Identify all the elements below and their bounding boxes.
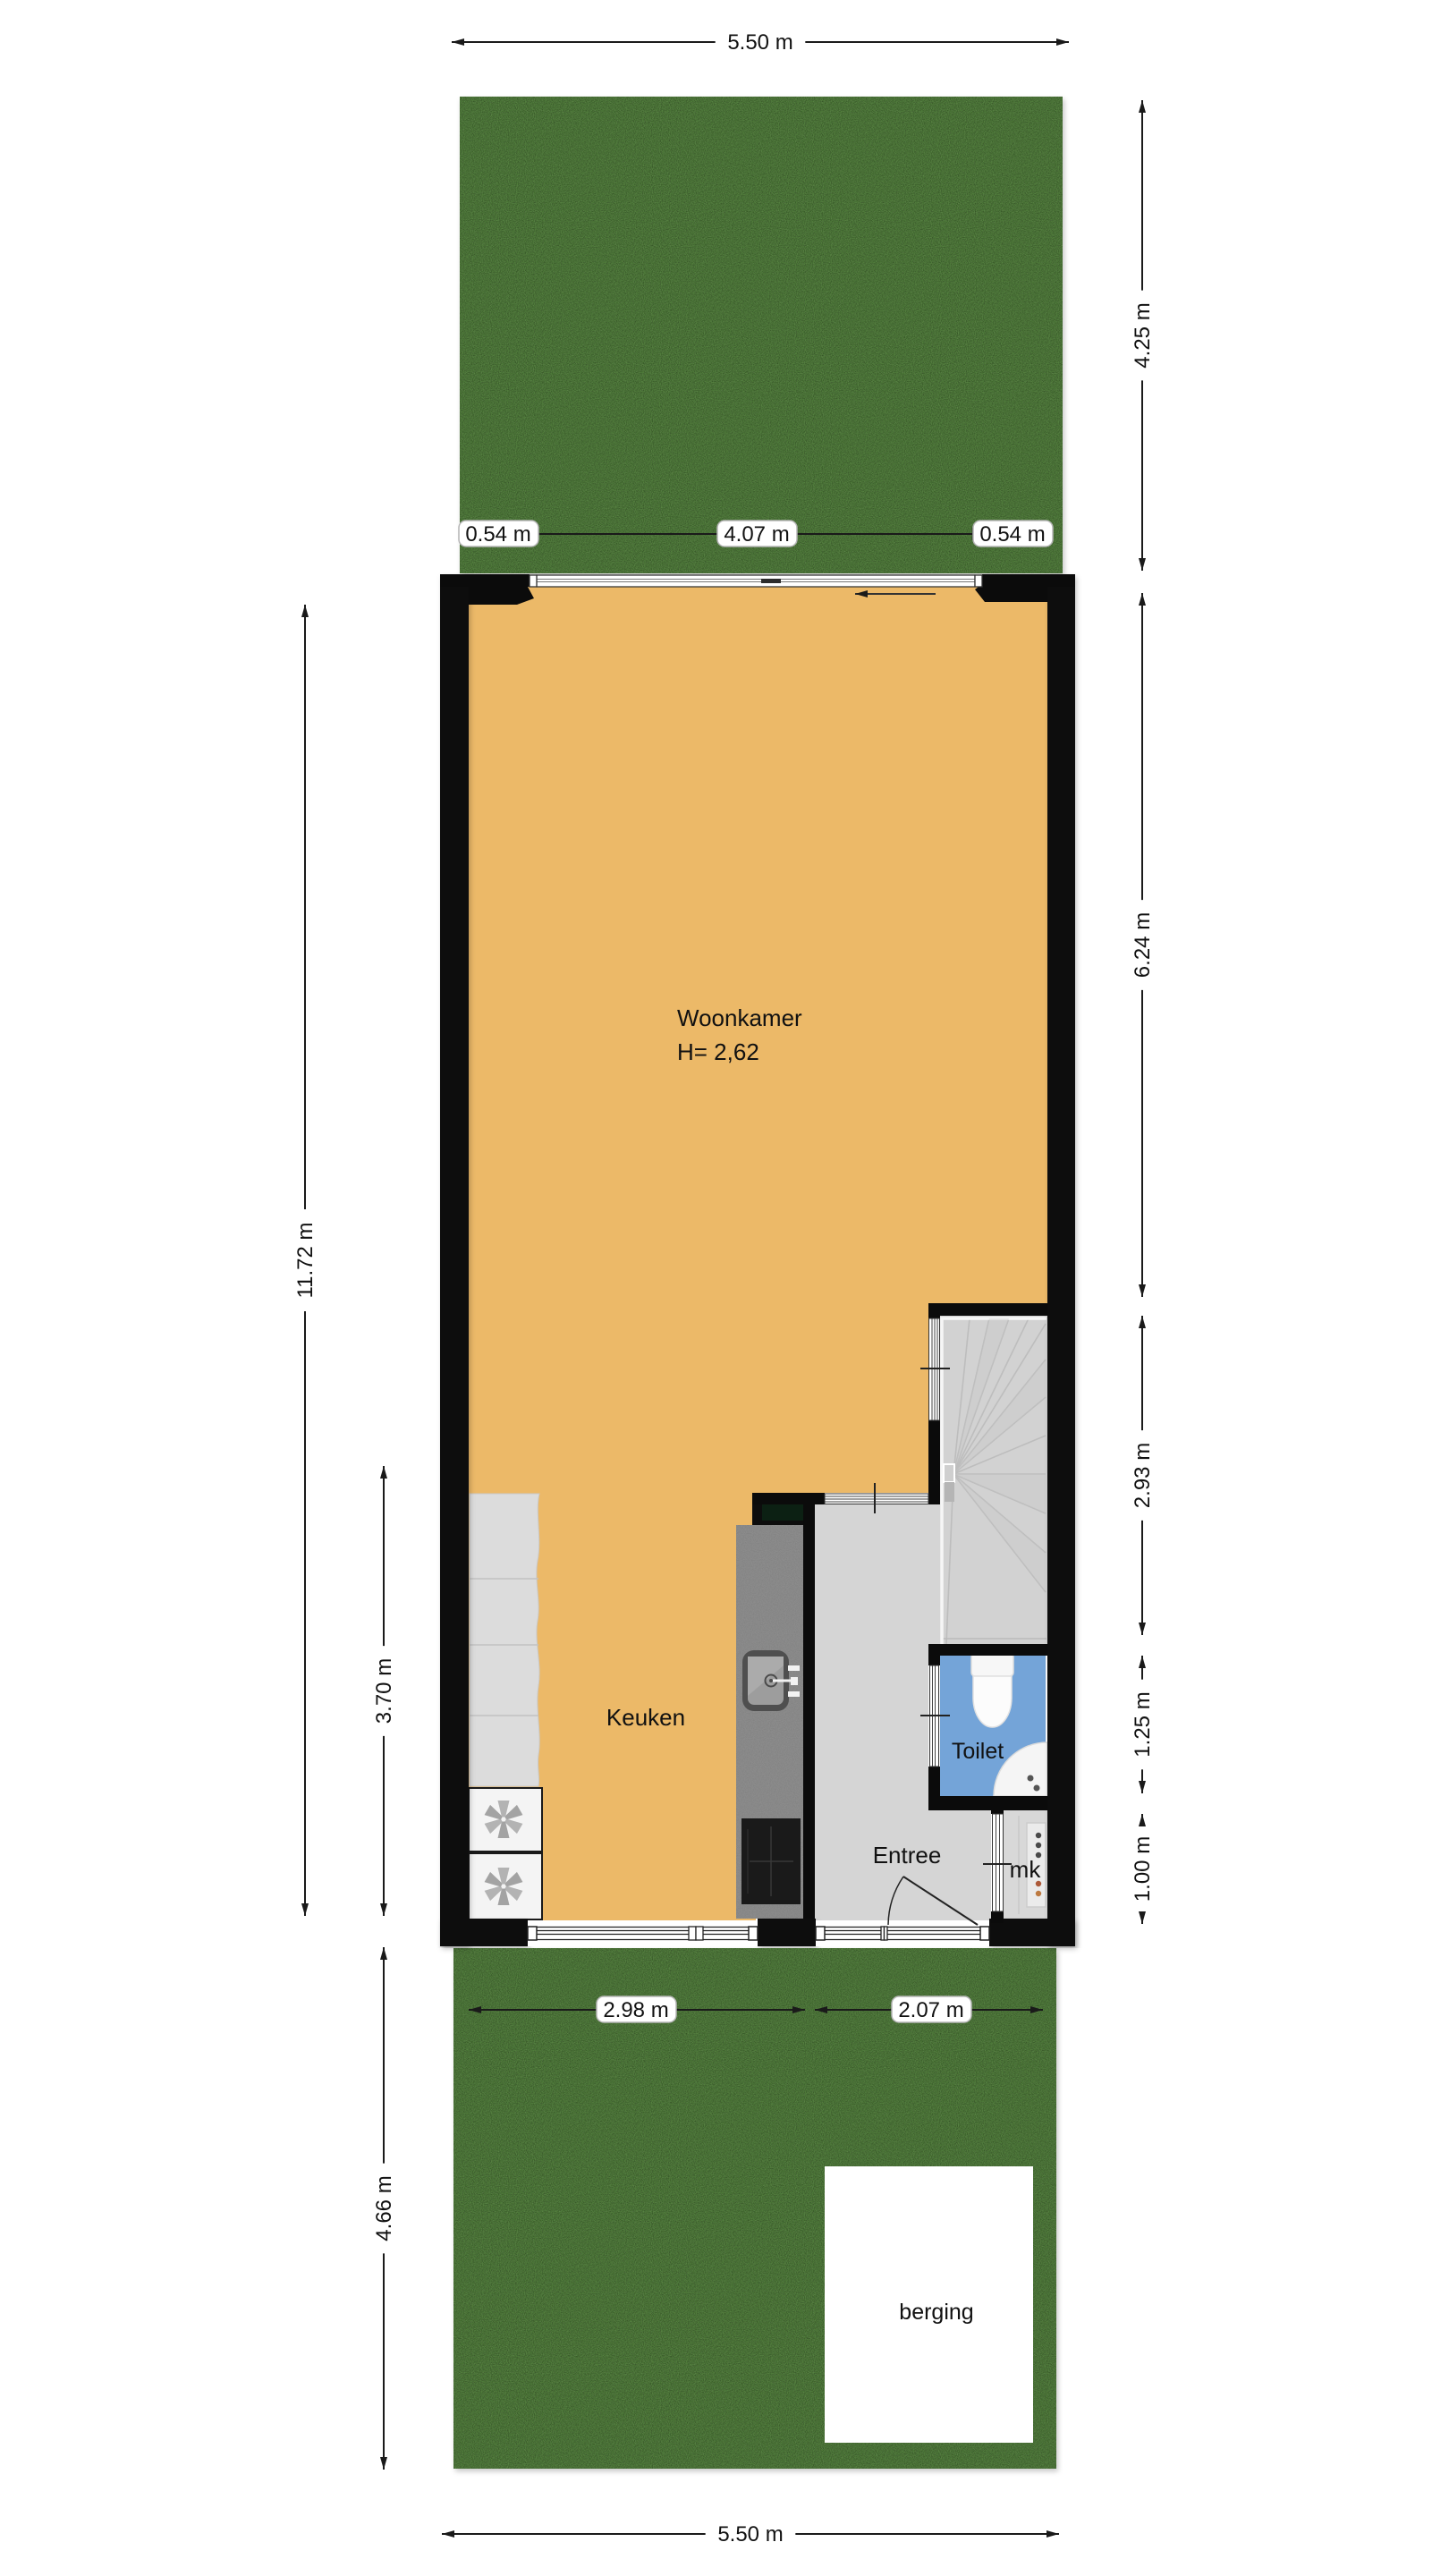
svg-text:Entree: Entree [873, 1842, 942, 1868]
svg-text:3.70 m: 3.70 m [372, 1658, 396, 1724]
svg-text:6.24 m: 6.24 m [1131, 912, 1155, 978]
svg-text:Keuken: Keuken [606, 1704, 685, 1731]
svg-text:1.00 m: 1.00 m [1131, 1836, 1155, 1902]
svg-text:0.54 m: 0.54 m [979, 522, 1045, 547]
svg-text:Toilet: Toilet [952, 1739, 1004, 1764]
svg-text:H= 2,62: H= 2,62 [677, 1038, 759, 1065]
svg-text:2.93 m: 2.93 m [1131, 1443, 1155, 1508]
svg-text:1.25 m: 1.25 m [1131, 1691, 1155, 1757]
svg-text:11.72 m: 11.72 m [293, 1223, 318, 1299]
svg-text:4.07 m: 4.07 m [724, 522, 789, 547]
svg-text:2.07 m: 2.07 m [898, 1998, 963, 2022]
svg-text:4.25 m: 4.25 m [1131, 302, 1155, 368]
svg-text:5.50 m: 5.50 m [727, 30, 792, 55]
svg-text:4.66 m: 4.66 m [372, 2175, 396, 2241]
svg-text:5.50 m: 5.50 m [717, 2522, 783, 2546]
svg-text:2.98 m: 2.98 m [603, 1998, 668, 2022]
svg-text:0.54 m: 0.54 m [465, 522, 530, 547]
svg-text:Woonkamer: Woonkamer [677, 1004, 802, 1031]
svg-text:berging: berging [899, 2300, 973, 2325]
svg-text:mk: mk [1010, 1856, 1042, 1883]
